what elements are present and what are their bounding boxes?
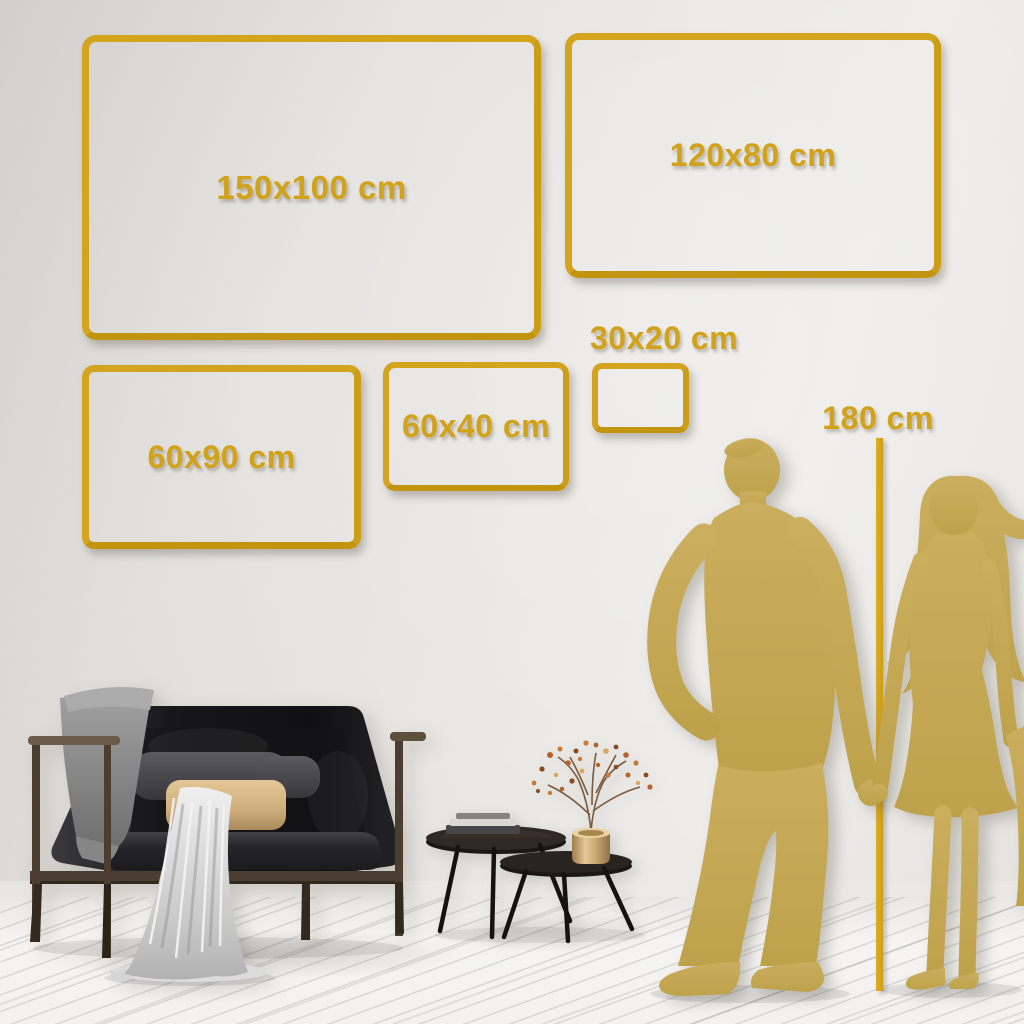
man-silhouette (659, 436, 884, 996)
size-frame-60x90: 60x90 cm (82, 365, 361, 549)
seat-cushion (108, 832, 382, 870)
big-table (426, 826, 570, 937)
size-label-30x20: 30x20 cm (590, 320, 738, 357)
size-frame-60x40: 60x40 cm (383, 362, 569, 491)
height-reference-label: 180 cm (810, 400, 946, 437)
size-frame-120x80: 120x80 cm (565, 33, 941, 278)
size-label-120x80: 120x80 cm (670, 137, 836, 174)
brass-vase (572, 828, 610, 864)
size-label-150x100: 150x100 cm (216, 169, 406, 207)
couple-silhouette (640, 436, 1024, 1012)
size-frame-150x100: 150x100 cm (82, 35, 541, 340)
size-guide-scene: 150x100 cm 120x80 cm 60x90 cm 60x40 cm 3… (0, 0, 1024, 1024)
size-label-60x90: 60x90 cm (147, 439, 295, 476)
books (446, 813, 520, 834)
woman-silhouette (870, 476, 1024, 990)
size-label-60x40: 60x40 cm (402, 408, 550, 445)
size-frame-30x20 (592, 363, 689, 433)
branch-plant (532, 740, 653, 831)
coffee-tables (420, 735, 660, 945)
sofa (18, 686, 428, 996)
